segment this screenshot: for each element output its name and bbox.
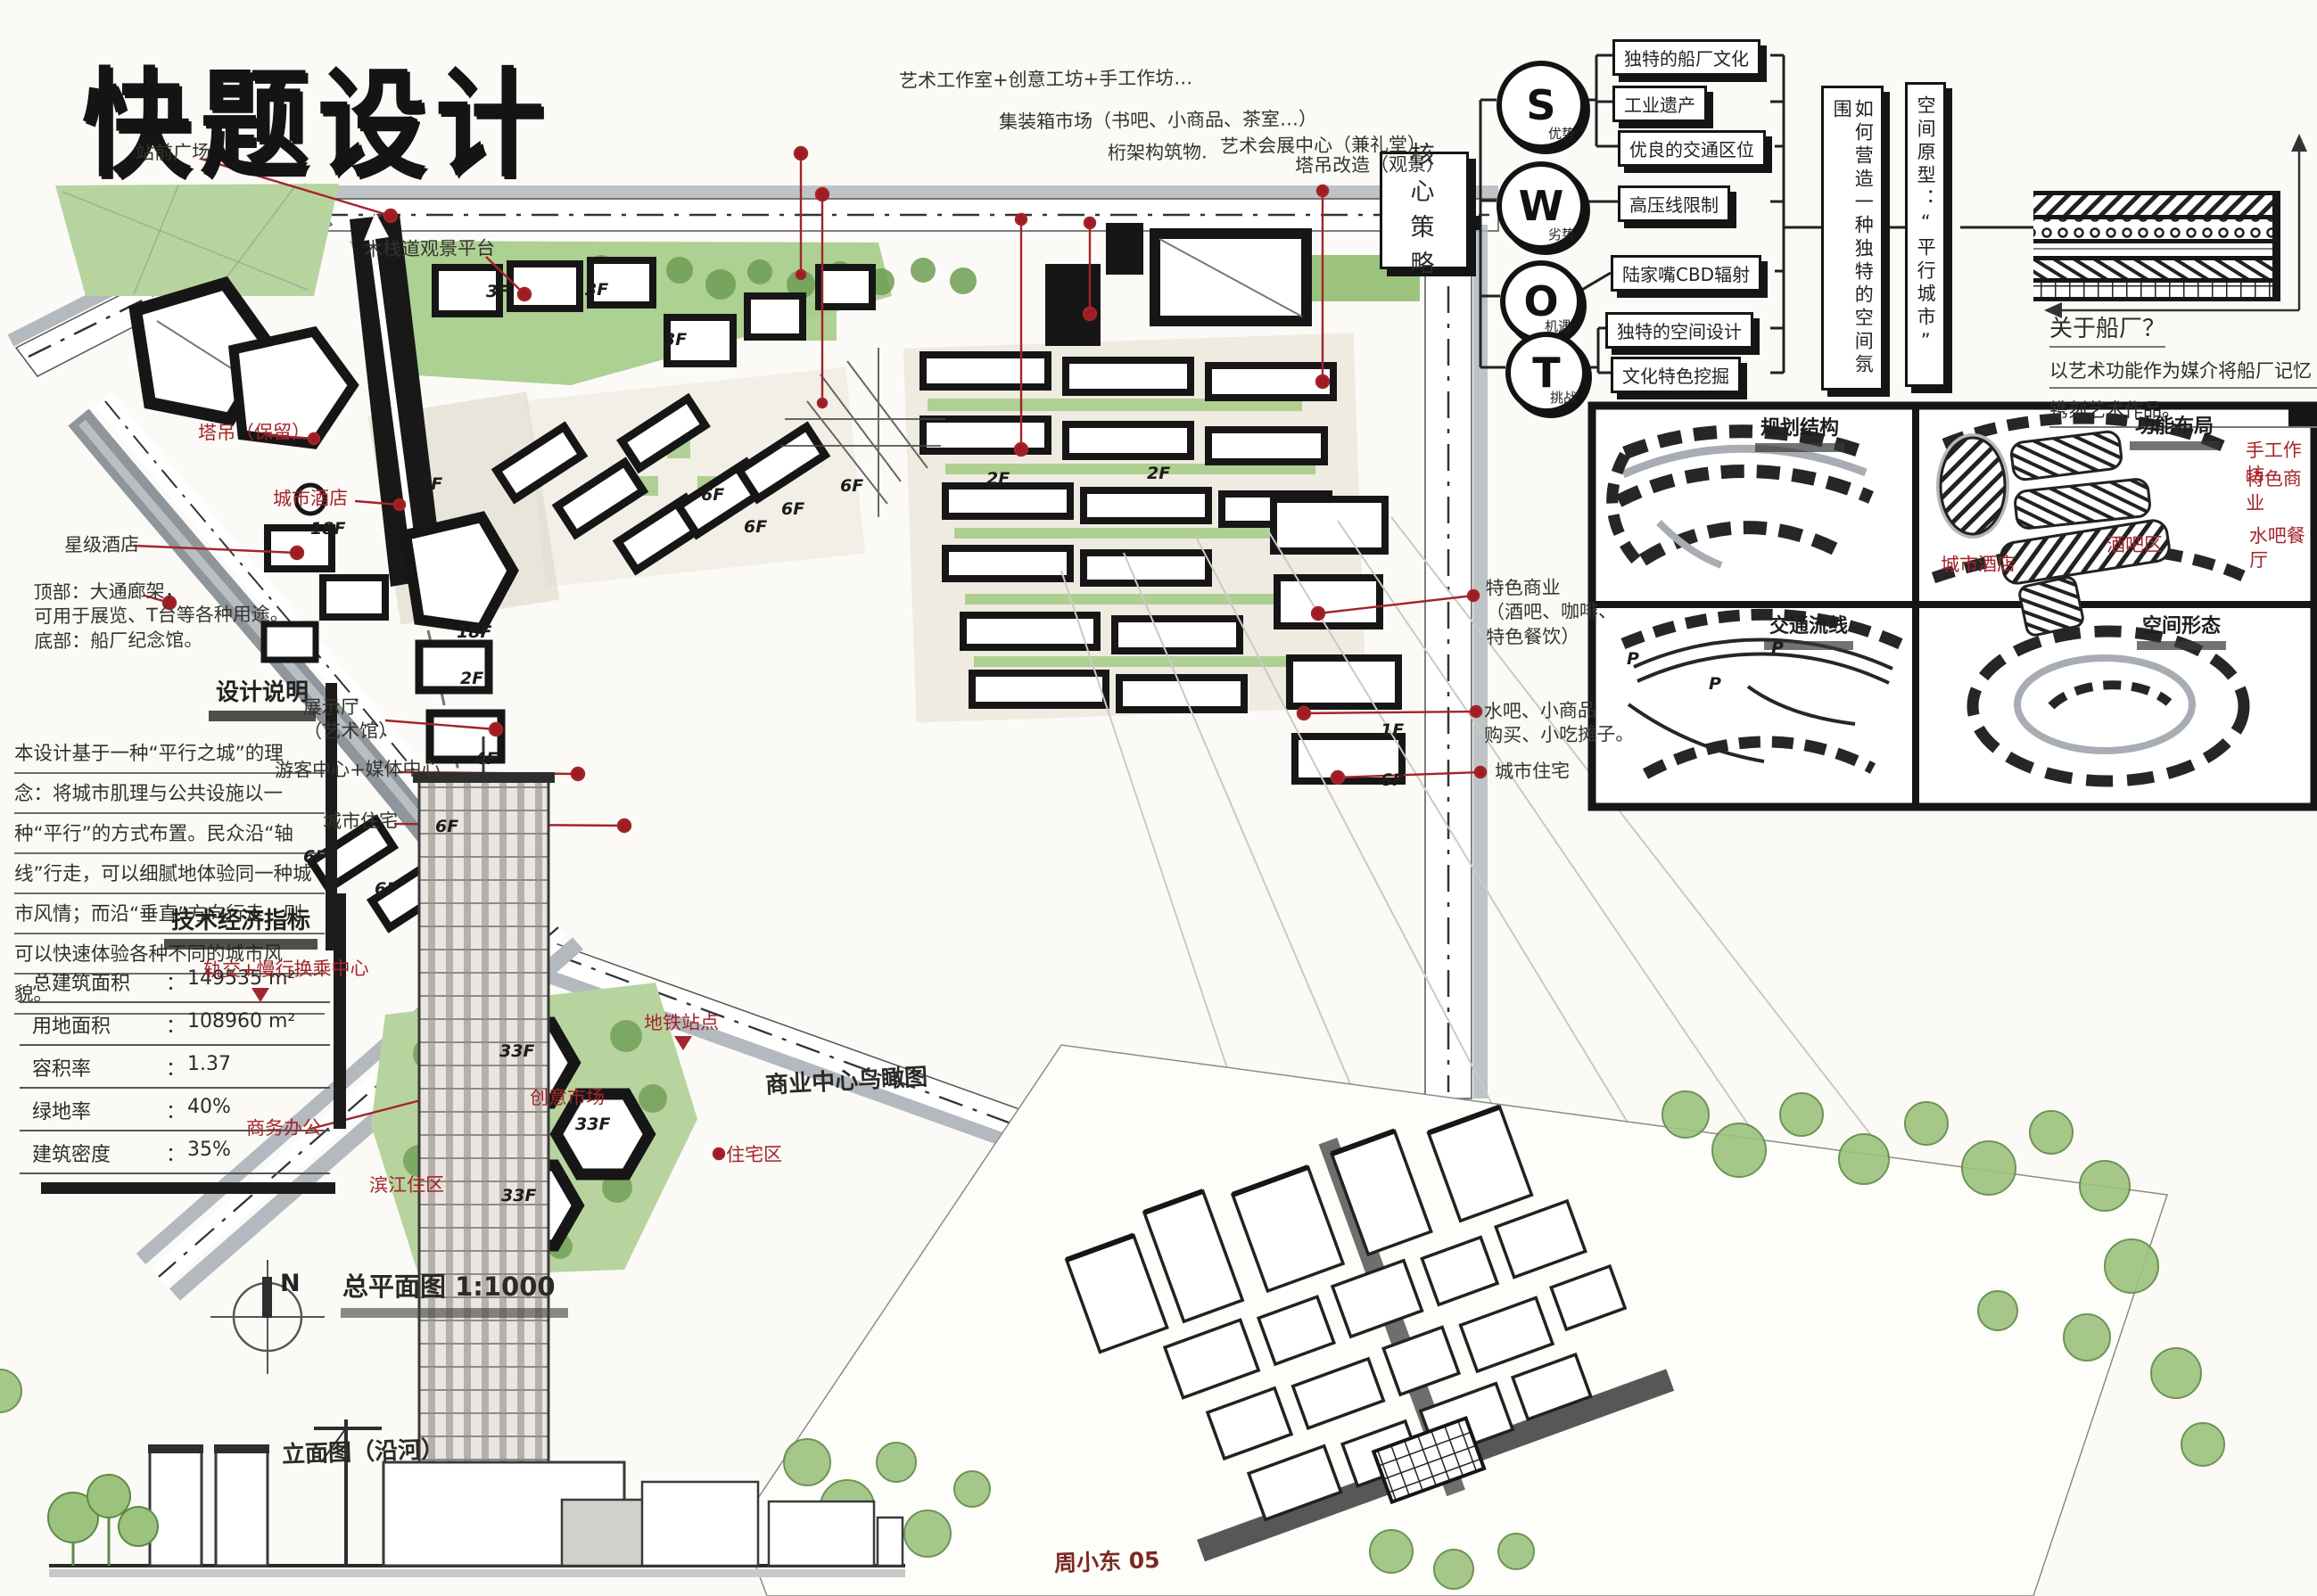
swot-sub-t: 挑战 bbox=[1550, 388, 1577, 407]
indicator-value: 1.37 bbox=[187, 1053, 231, 1082]
plan-annotation: 城市住宅 bbox=[323, 810, 398, 835]
plan-annotation: 城市酒店 bbox=[273, 487, 348, 512]
plan-annotation: 顶部：大通廊架， 可用于展览、T台等各种用途。 底部：船厂纪念馆。 bbox=[34, 579, 290, 654]
swot-circle-w: W 劣势 bbox=[1497, 161, 1586, 251]
plan-caption: 总平面图 1:1000 bbox=[341, 1266, 568, 1318]
floor-label: 6F bbox=[781, 499, 804, 519]
floor-label: 33F bbox=[499, 1041, 534, 1061]
floor-label: 33F bbox=[501, 1186, 536, 1205]
floor-label: P bbox=[1627, 649, 1639, 669]
indicator-value: 40% bbox=[187, 1096, 231, 1124]
indicator-colon: ： bbox=[166, 1139, 187, 1167]
prototype-vertical-box: 空间原型：“平行城市” bbox=[1905, 82, 1946, 387]
plan-annotation: 特色商业 （酒吧、咖啡、 特色餐饮） bbox=[1486, 575, 1618, 649]
swot-item-w1: 高压线限制 bbox=[1618, 185, 1730, 222]
swot-sub-s: 优势 bbox=[1548, 124, 1575, 143]
labels-layer: 快题设计 S 优势 W 劣势 O 机遇 T 挑战 独特的船厂文化 工业遗产 优良… bbox=[0, 0, 2317, 1596]
floor-label: 2F bbox=[1147, 464, 1170, 483]
indicator-name: 用地面积 bbox=[32, 1010, 166, 1039]
plan-annotation: 水吧、小商品 购买、小吃摊子。 bbox=[1484, 698, 1635, 748]
floor-label: 3F bbox=[585, 280, 608, 300]
indicator-colon: ： bbox=[166, 1053, 187, 1082]
floor-label: 18F bbox=[457, 622, 491, 642]
plan-annotation: 水吧餐厅 bbox=[2249, 524, 2317, 573]
indicator-colon: ： bbox=[166, 1096, 187, 1124]
swot-item-s3: 优良的交通区位 bbox=[1618, 130, 1766, 167]
plan-annotation: 创意市场 bbox=[530, 1086, 605, 1111]
north-arrow-label: N bbox=[280, 1270, 301, 1297]
plan-annotation: 特色商业 bbox=[2246, 467, 2317, 516]
indicator-name: 容积率 bbox=[32, 1053, 166, 1082]
floor-label: 6F bbox=[1381, 770, 1404, 790]
plan-annotation: 轨交+慢行换乘中心 bbox=[203, 957, 369, 983]
plan-annotation: 城市住宅 bbox=[1495, 760, 1570, 785]
plan-annotation: 游客中心+媒体中心 bbox=[275, 757, 441, 783]
plan-annotation: 酒吧区 bbox=[2107, 533, 2163, 558]
floor-label: 6F bbox=[375, 879, 398, 899]
floor-label: 6F bbox=[435, 817, 458, 836]
plan-annotation: 站前广场 bbox=[136, 141, 210, 166]
floor-label: 6F bbox=[303, 847, 326, 867]
plan-annotation: 滨江住区 bbox=[369, 1173, 444, 1198]
indicator-name: 建筑密度 bbox=[32, 1139, 166, 1167]
signature: 周小东 05 bbox=[1053, 1543, 1160, 1578]
plan-annotation: 木栈道观景平台 bbox=[364, 236, 495, 262]
floor-label: 6F bbox=[840, 476, 863, 496]
swot-item-t2: 文化特色挖掘 bbox=[1611, 357, 1741, 393]
analysis-tag-structure: 规划结构 bbox=[1755, 412, 1844, 452]
swot-item-s2: 工业遗产 bbox=[1612, 86, 1707, 122]
floor-label: 33F bbox=[575, 1115, 610, 1134]
indicator-name: 绿地率 bbox=[32, 1096, 166, 1124]
floor-label: 7F bbox=[419, 474, 442, 494]
birdseye-caption: 商业中心鸟瞰图 bbox=[764, 1058, 928, 1099]
swot-item-s1: 独特的船厂文化 bbox=[1612, 39, 1760, 76]
plan-annotation: 塔吊（保留） bbox=[198, 420, 310, 446]
plan-annotation: 桁架构筑物. bbox=[1108, 140, 1208, 165]
shipyard-answer-line1: 以艺术功能作为媒介将船厂记忆 bbox=[2049, 357, 2317, 389]
floor-label: 18F bbox=[310, 519, 345, 539]
indicator-name: 总建筑面积 bbox=[32, 967, 166, 996]
swot-circle-s: S 优势 bbox=[1497, 61, 1586, 150]
plan-annotation: 塔吊改造（观景） bbox=[1295, 152, 1445, 178]
analysis-tag-function: 功能布局 bbox=[2130, 410, 2219, 450]
indicator-colon: ： bbox=[166, 1010, 187, 1039]
question-vertical-box: 如何营造一种独特的空间氛围 bbox=[1821, 86, 1884, 391]
indicators-title: 技术经济指标 bbox=[164, 902, 317, 950]
elevation-caption: 立面图（沿河） bbox=[281, 1431, 444, 1469]
plan-annotation: 城市酒店 bbox=[1941, 553, 2016, 578]
floor-label: 2F bbox=[986, 469, 1010, 489]
floor-label: 1F bbox=[1381, 720, 1404, 740]
board-title: 快题设计 bbox=[82, 29, 553, 200]
swot-circle-t: T 挑战 bbox=[1505, 332, 1587, 414]
shipyard-question: 关于船厂？ bbox=[2049, 310, 2165, 348]
plan-annotation: 集装箱市场（书吧、小商品、茶室…） bbox=[999, 107, 1317, 135]
plan-annotation: 商务办公 bbox=[246, 1116, 321, 1141]
swot-letter-w: W bbox=[1519, 182, 1564, 230]
indicator-value: 35% bbox=[187, 1139, 231, 1167]
floor-label: 4F bbox=[474, 749, 498, 769]
plan-annotation: 艺术工作室+创意工坊+手工作坊… bbox=[899, 66, 1192, 94]
floor-label: 3F bbox=[486, 282, 509, 301]
floor-label: P bbox=[1709, 674, 1721, 694]
plan-annotation: 住宅区 bbox=[726, 1143, 782, 1168]
presentation-board: 快题设计 S 优势 W 劣势 O 机遇 T 挑战 独特的船厂文化 工业遗产 优良… bbox=[0, 0, 2317, 1596]
floor-label: 6F bbox=[744, 517, 767, 537]
indicators-rows: 总建筑面积：149535 m²用地面积：108960 m²容积率：1.37绿地率… bbox=[20, 960, 330, 1174]
panel-edge-bar bbox=[334, 893, 346, 1129]
indicator-value: 108960 m² bbox=[187, 1010, 295, 1039]
swot-letter-s: S bbox=[1526, 81, 1555, 129]
design-notes-title: 设计说明 bbox=[209, 674, 316, 721]
floor-label: 6F bbox=[701, 485, 724, 505]
swot-sub-w: 劣势 bbox=[1548, 225, 1575, 243]
floor-label: P bbox=[1771, 638, 1784, 658]
analysis-tag-form: 空间形态 bbox=[2137, 610, 2226, 650]
swot-circle-o: O 机遇 bbox=[1500, 260, 1582, 342]
indicator-colon: ： bbox=[166, 967, 187, 996]
plan-annotation: 展示厅 （艺术馆） bbox=[303, 695, 398, 745]
panel-bottom-bar bbox=[41, 1182, 335, 1194]
plan-annotation: 地铁站点 bbox=[644, 1011, 719, 1036]
floor-label: 3F bbox=[664, 330, 687, 350]
indicator-row: 容积率：1.37 bbox=[20, 1046, 330, 1089]
swot-item-o1: 陆家嘴CBD辐射 bbox=[1611, 255, 1761, 292]
plan-annotation: 星级酒店 bbox=[64, 533, 139, 558]
swot-item-t1: 独特的空间设计 bbox=[1605, 312, 1753, 349]
floor-label: 2F bbox=[460, 669, 483, 688]
indicator-row: 用地面积：108960 m² bbox=[20, 1003, 330, 1046]
